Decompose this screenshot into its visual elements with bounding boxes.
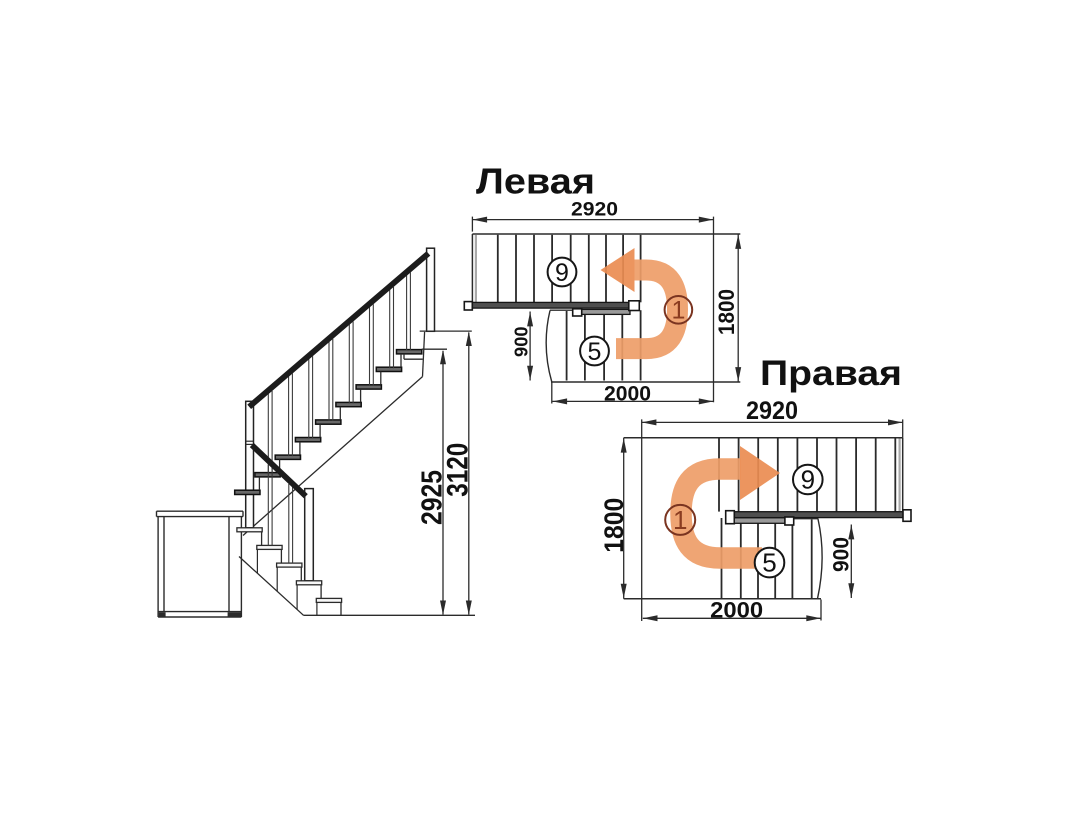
svg-text:2000: 2000 bbox=[710, 598, 763, 623]
svg-text:3120: 3120 bbox=[442, 443, 475, 497]
svg-text:Левая: Левая bbox=[476, 160, 595, 201]
svg-text:Правая: Правая bbox=[760, 354, 902, 393]
svg-text:5: 5 bbox=[762, 548, 776, 578]
svg-text:2000: 2000 bbox=[604, 383, 651, 406]
svg-text:900: 900 bbox=[510, 326, 531, 357]
svg-text:9: 9 bbox=[801, 465, 815, 495]
svg-text:5: 5 bbox=[588, 338, 602, 366]
svg-text:900: 900 bbox=[829, 537, 854, 572]
svg-text:1: 1 bbox=[673, 505, 687, 535]
svg-text:2920: 2920 bbox=[571, 199, 618, 221]
svg-text:9: 9 bbox=[555, 259, 569, 287]
svg-text:1800: 1800 bbox=[599, 498, 629, 553]
svg-text:1: 1 bbox=[671, 297, 685, 325]
svg-text:1800: 1800 bbox=[714, 289, 739, 335]
svg-text:2920: 2920 bbox=[746, 397, 798, 425]
